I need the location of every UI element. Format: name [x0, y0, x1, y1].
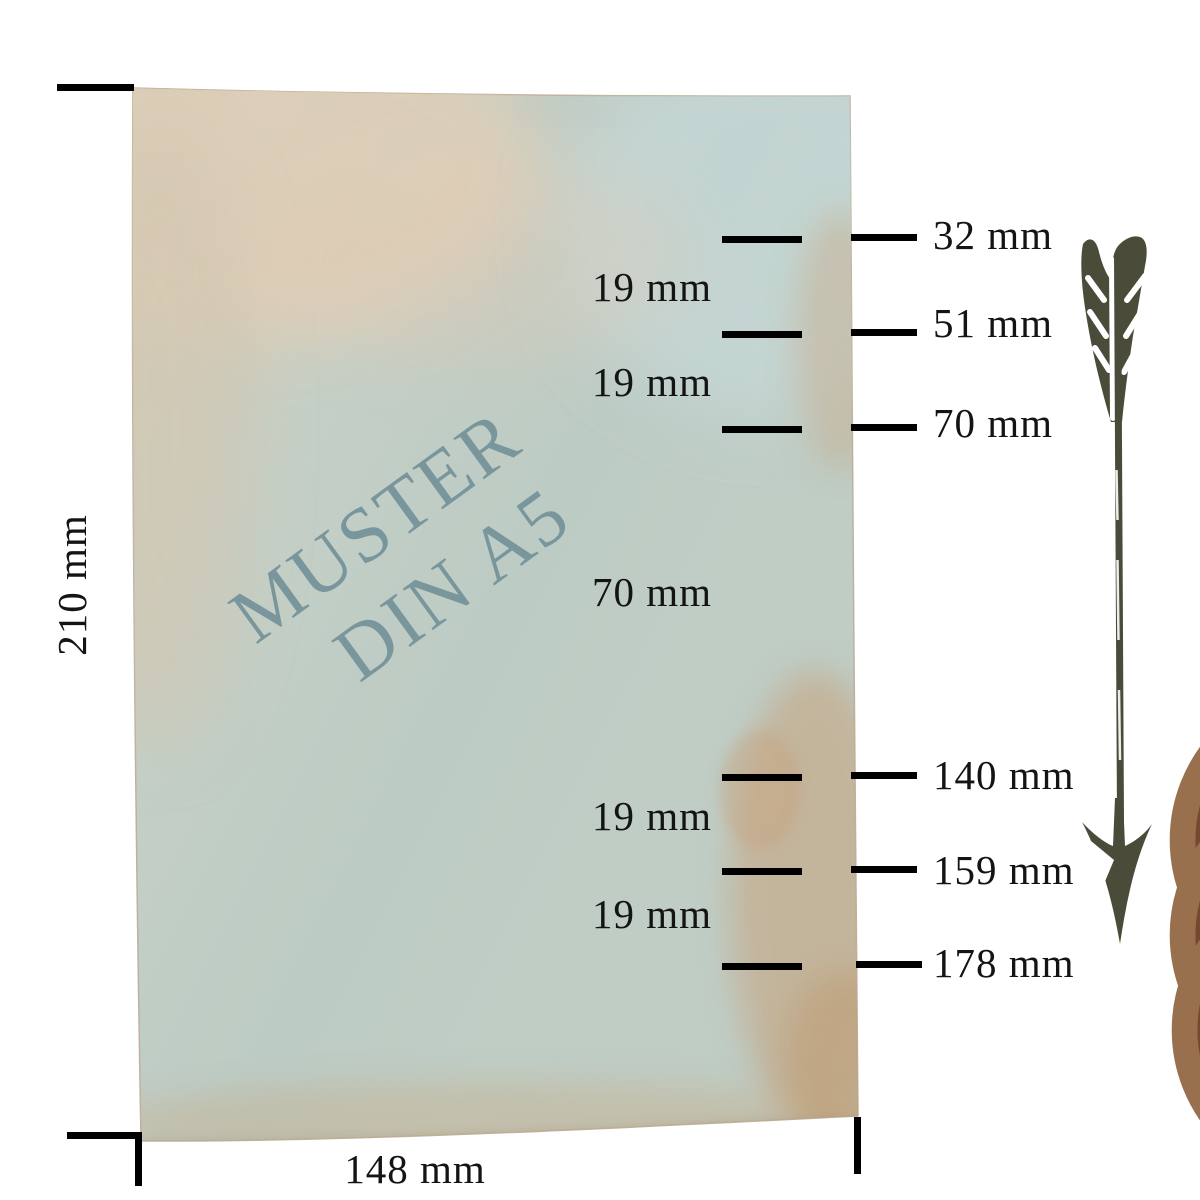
- dimension-line: [722, 868, 802, 875]
- dimension-line: [851, 329, 917, 336]
- hole-gap-label-4: 19 mm: [592, 793, 712, 839]
- dimension-line: [851, 866, 917, 873]
- hole-distance-label-4: 140 mm: [933, 752, 1075, 798]
- dimension-line: [851, 424, 917, 431]
- paper-sheet: MUSTER DIN A5: [0, 0, 980, 1170]
- hole-gap-label-3: 70 mm: [592, 569, 712, 615]
- dimension-line: [722, 774, 802, 781]
- hole-distance-label-6: 178 mm: [933, 940, 1075, 986]
- eyelet-ring-icon: [1186, 1147, 1200, 1200]
- hole-distance-label-1: 32 mm: [933, 212, 1053, 258]
- din-a5-dimension-diagram: MUSTER DIN A5 32 mm 5: [0, 0, 1200, 1200]
- diagram-canvas: MUSTER DIN A5 32 mm 5: [0, 0, 1200, 1200]
- feather-arrow-down-icon: [1081, 236, 1152, 944]
- eyelets: [1183, 609, 1200, 1200]
- hole-distance-label-3: 70 mm: [933, 400, 1053, 446]
- hole-gap-label-2: 19 mm: [592, 359, 712, 405]
- dimension-line: [722, 236, 802, 243]
- tick-bottom-right-vertical: [854, 1117, 861, 1174]
- dimension-line: [722, 426, 802, 433]
- tick-bottom-left-horizontal: [67, 1132, 139, 1139]
- sheet-width-label: 148 mm: [344, 1146, 486, 1192]
- dimension-line: [722, 331, 802, 338]
- tick-top-left: [57, 84, 134, 91]
- hole-gap-label-5: 19 mm: [592, 891, 712, 937]
- dimension-line: [856, 961, 922, 968]
- hole-distance-label-5: 159 mm: [933, 847, 1075, 893]
- dimension-line: [851, 772, 917, 779]
- hole-distance-label-2: 51 mm: [933, 300, 1053, 346]
- sheet-height-label: 210 mm: [49, 514, 95, 656]
- dimension-line: [722, 963, 802, 970]
- hole-gap-label-1: 19 mm: [592, 264, 712, 310]
- dimension-line: [851, 234, 917, 241]
- tick-bottom-left-vertical: [135, 1132, 142, 1186]
